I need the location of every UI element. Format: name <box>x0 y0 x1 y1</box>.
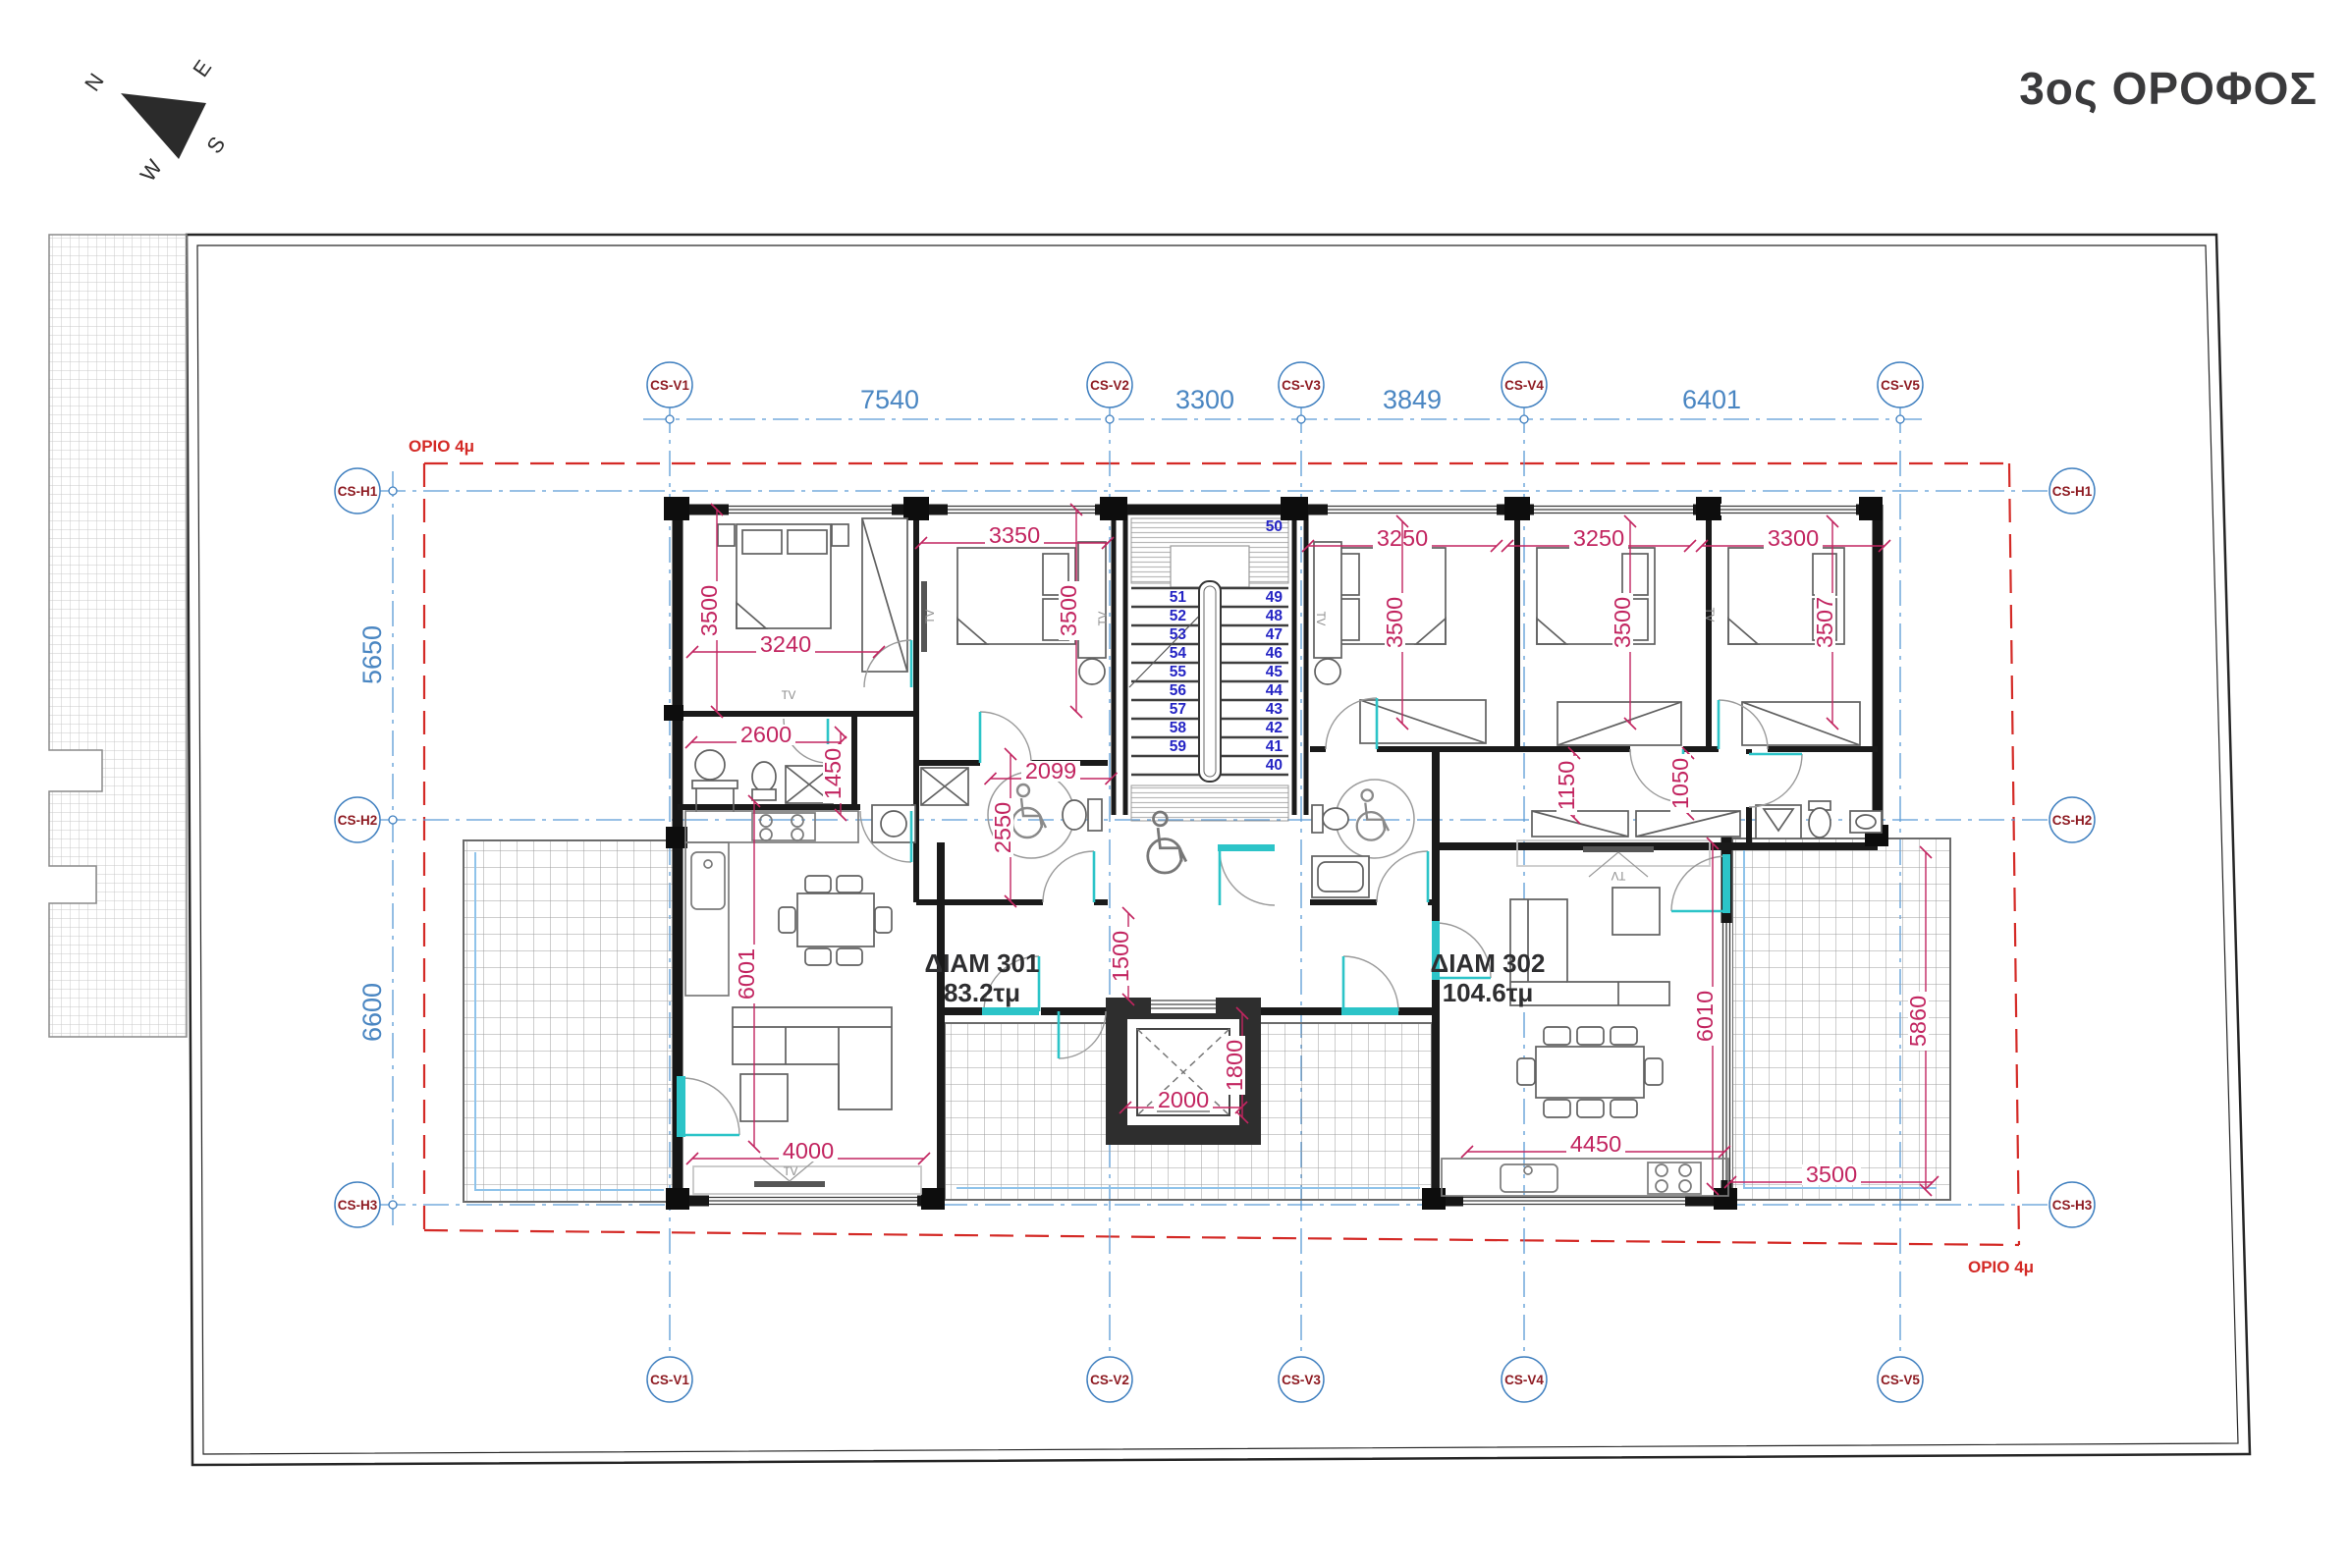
tv-label: TV <box>1314 612 1326 626</box>
axis-left-CS-H2-label: CS-H2 <box>338 813 378 828</box>
svg-text:4000: 4000 <box>783 1138 834 1163</box>
grid-node <box>389 487 397 495</box>
svg-text:3500: 3500 <box>1610 597 1635 648</box>
sofa-1 <box>733 1007 892 1121</box>
wardrobe-4 <box>1557 702 1681 745</box>
stair-step-number: 56 <box>1170 682 1187 699</box>
grid-node <box>389 1201 397 1209</box>
dining-table-2 <box>1517 1027 1663 1117</box>
svg-text:1050: 1050 <box>1667 758 1693 809</box>
stair-step-number: 58 <box>1170 720 1187 736</box>
compass-needle <box>121 93 206 159</box>
axis-bottom-CS-V2-label: CS-V2 <box>1090 1373 1129 1387</box>
dimension-4450: 4450 <box>1461 1131 1730 1158</box>
svg-text:3507: 3507 <box>1812 597 1837 648</box>
stair-step-number: 45 <box>1266 664 1284 680</box>
axis-bottom-CS-V1-label: CS-V1 <box>650 1373 689 1387</box>
axis-bottom-CS-V4-label: CS-V4 <box>1504 1373 1544 1387</box>
svg-text:5860: 5860 <box>1905 996 1931 1047</box>
window-east-living <box>1721 923 1732 1180</box>
dimension-2550: 2550 <box>990 748 1016 907</box>
compass-n: N <box>80 69 109 95</box>
apartment-301-name: ΔΙΑΜ 301 <box>925 948 1040 978</box>
apartment-302-name: ΔΙΑΜ 302 <box>1431 948 1546 978</box>
stair-step-number: 55 <box>1170 664 1187 680</box>
window-south-left <box>709 1195 917 1207</box>
axis-top-CS-V3-label: CS-V3 <box>1282 378 1321 393</box>
axis-bottom-CS-V3-label: CS-V3 <box>1282 1373 1321 1387</box>
dimension-6010: 6010 <box>1692 838 1719 1195</box>
stair-step-number: 54 <box>1170 645 1187 662</box>
grid-node <box>1520 415 1528 423</box>
kitchen-2 <box>1442 1159 1728 1196</box>
washing-machine <box>872 805 915 842</box>
side-table-2 <box>1612 888 1660 935</box>
svg-text:3350: 3350 <box>989 522 1040 548</box>
stair-step-number: 57 <box>1170 701 1186 718</box>
floor-plan-drawing: 3ος ΟΡΟΦΟΣ N E S W ΟΡΙΟ 4μ ΟΡΙΟ 4μ CS-V1… <box>0 0 2349 1568</box>
stair-step-number: 40 <box>1266 757 1283 774</box>
grid-node <box>1896 415 1904 423</box>
stair-step-number: 59 <box>1170 738 1187 755</box>
dining-table-1 <box>779 876 892 965</box>
svg-text:3240: 3240 <box>760 631 811 657</box>
tv-label: TV <box>925 609 937 623</box>
compass-e: E <box>188 56 216 81</box>
tv-console-1 <box>693 1166 921 1194</box>
dimension-1150: 1150 <box>1554 747 1580 824</box>
stair-step-number: 53 <box>1170 626 1187 643</box>
tv-label: TV <box>1098 611 1110 625</box>
grid-span-dim: 3300 <box>1175 385 1234 414</box>
stair-step-number: 50 <box>1266 518 1283 535</box>
grid-span-dim: 6401 <box>1682 385 1741 414</box>
page-title: 3ος ΟΡΟΦΟΣ <box>2019 63 2318 114</box>
floor-plan-page: 3ος ΟΡΟΦΟΣ N E S W ΟΡΙΟ 4μ ΟΡΙΟ 4μ CS-V1… <box>0 0 2349 1568</box>
dimension-3250: 3250 <box>1502 525 1696 552</box>
axis-right-CS-H1-label: CS-H1 <box>2052 484 2093 499</box>
svg-text:6001: 6001 <box>734 948 759 1000</box>
stair-step-number: 49 <box>1266 589 1284 606</box>
svg-text:3500: 3500 <box>696 585 722 636</box>
svg-text:2550: 2550 <box>990 802 1015 853</box>
axis-left-CS-H1-label: CS-H1 <box>338 484 378 499</box>
stair-step-number: 44 <box>1266 682 1284 699</box>
setback-label-bottom: ΟΡΙΟ 4μ <box>1968 1258 2034 1276</box>
stair-step-number: 51 <box>1170 589 1187 606</box>
adjacent-building-hatch <box>49 235 187 1037</box>
grid-node <box>666 415 674 423</box>
axis-bottom-CS-V5-label: CS-V5 <box>1881 1373 1920 1387</box>
svg-text:3300: 3300 <box>1768 525 1819 551</box>
svg-text:3250: 3250 <box>1573 525 1624 551</box>
tv-label: TV <box>1703 608 1715 622</box>
bed-4 <box>1537 548 1655 644</box>
stair-step-number: 48 <box>1266 608 1284 624</box>
stair-step-number: 46 <box>1266 645 1284 662</box>
dimension-3500: 3500 <box>1056 504 1082 718</box>
dimension-1050: 1050 <box>1667 747 1694 820</box>
grid-span-dim: 5650 <box>357 625 387 684</box>
svg-text:3500: 3500 <box>1382 597 1407 648</box>
svg-text:1500: 1500 <box>1108 931 1133 982</box>
axis-top-CS-V4-label: CS-V4 <box>1504 378 1544 393</box>
apartment-301-area: 83.2τμ <box>944 978 1020 1007</box>
axis-left-CS-H3-label: CS-H3 <box>338 1198 378 1213</box>
stair-step-number: 42 <box>1266 720 1283 736</box>
axis-top-CS-V5-label: CS-V5 <box>1881 378 1920 393</box>
svg-text:1800: 1800 <box>1222 1040 1247 1091</box>
compass-w: W <box>136 155 168 187</box>
axis-top-CS-V2-label: CS-V2 <box>1090 378 1129 393</box>
grid-span-dim: 6600 <box>357 983 387 1042</box>
wheelchair-icon <box>1012 784 1046 838</box>
grid-span-dim: 7540 <box>860 385 919 414</box>
wardrobe-5 <box>1742 702 1860 745</box>
stair-step-number: 41 <box>1266 738 1284 755</box>
setback-label-top: ΟΡΙΟ 4μ <box>409 437 474 456</box>
svg-text:1150: 1150 <box>1554 761 1579 811</box>
axis-top-CS-V1-label: CS-V1 <box>650 378 689 393</box>
tv-label: TV <box>1611 869 1625 881</box>
svg-text:3500: 3500 <box>1806 1162 1857 1187</box>
dimension-4000: 4000 <box>686 1138 930 1164</box>
svg-text:2600: 2600 <box>740 722 792 747</box>
svg-text:2000: 2000 <box>1158 1087 1209 1112</box>
wheelchair-icon <box>1357 789 1389 839</box>
compass-s: S <box>201 133 230 158</box>
svg-text:3500: 3500 <box>1056 585 1081 636</box>
svg-text:6010: 6010 <box>1692 991 1718 1042</box>
terrace-left <box>464 840 676 1202</box>
grid-span-dim: 3849 <box>1383 385 1442 414</box>
dimension-1500: 1500 <box>1108 907 1134 1005</box>
axis-right-CS-H2-label: CS-H2 <box>2052 813 2093 828</box>
grid-node <box>389 816 397 824</box>
bed-1 <box>718 524 848 628</box>
north-arrow-compass: N E S W <box>80 56 230 187</box>
tv-label: TV <box>782 690 796 702</box>
svg-text:2099: 2099 <box>1025 758 1076 784</box>
bathroom-4-fixtures <box>1756 801 1882 838</box>
grid-node <box>1106 415 1114 423</box>
grid-node <box>1297 415 1305 423</box>
apartment-302-area: 104.6τμ <box>1443 978 1534 1007</box>
svg-text:1450: 1450 <box>820 748 846 799</box>
axis-right-CS-H3-label: CS-H3 <box>2052 1198 2093 1213</box>
dimension-2600: 2600 <box>685 722 847 748</box>
dimension-3300: 3300 <box>1696 525 1890 552</box>
tv-label: TV <box>784 1166 798 1178</box>
stair-step-number: 47 <box>1266 626 1283 643</box>
stair-rail <box>1199 581 1221 782</box>
svg-text:4450: 4450 <box>1570 1131 1621 1157</box>
stair-step-number: 52 <box>1170 608 1186 624</box>
wardrobe-3 <box>1360 700 1486 743</box>
stair-step-number: 43 <box>1266 701 1284 718</box>
